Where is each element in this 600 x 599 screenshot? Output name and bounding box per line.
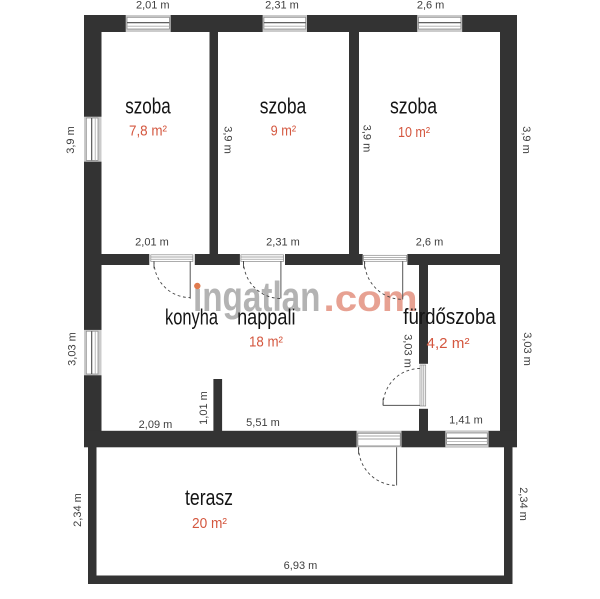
svg-text:2,6 m: 2,6 m [417,0,445,12]
svg-text:2,34 m: 2,34 m [72,493,84,527]
svg-text:2,31 m: 2,31 m [266,237,300,249]
svg-text:20 m²: 20 m² [192,516,227,532]
svg-text:2,34 m: 2,34 m [517,487,529,521]
svg-text:szoba: szoba [390,94,438,119]
svg-text:3,9 m: 3,9 m [360,125,372,153]
svg-text:2,01 m: 2,01 m [136,0,170,12]
svg-text:18 m²: 18 m² [249,335,283,351]
svg-text:3,03 m: 3,03 m [401,334,413,368]
svg-text:7,8 m²: 7,8 m² [129,124,167,140]
svg-text:1,01 m: 1,01 m [198,391,210,425]
svg-text:3,9 m: 3,9 m [520,126,532,154]
svg-text:szoba: szoba [125,94,171,119]
svg-text:fürdőszoba: fürdőszoba [403,304,496,329]
svg-text:4,2 m²: 4,2 m² [427,336,470,352]
svg-text:3,03 m: 3,03 m [67,332,79,366]
svg-text:9 m²: 9 m² [271,124,297,140]
svg-text:szoba: szoba [260,94,307,119]
svg-text:2,01 m: 2,01 m [135,237,169,249]
svg-text:nappali: nappali [237,305,295,330]
svg-text:terasz: terasz [185,485,233,510]
svg-text:3,9 m: 3,9 m [221,126,233,154]
svg-text:2,31 m: 2,31 m [265,0,299,12]
svg-text:2,09 m: 2,09 m [139,419,173,431]
svg-text:konyha: konyha [165,305,219,330]
svg-text:10 m²: 10 m² [398,125,430,141]
svg-text:5,51 m: 5,51 m [246,417,280,429]
svg-text:1,41 m: 1,41 m [449,415,483,427]
svg-text:3,03 m: 3,03 m [521,332,533,366]
svg-text:2,6 m: 2,6 m [416,237,444,249]
svg-text:3,9 m: 3,9 m [65,126,77,154]
svg-text:6,93 m: 6,93 m [284,560,318,572]
